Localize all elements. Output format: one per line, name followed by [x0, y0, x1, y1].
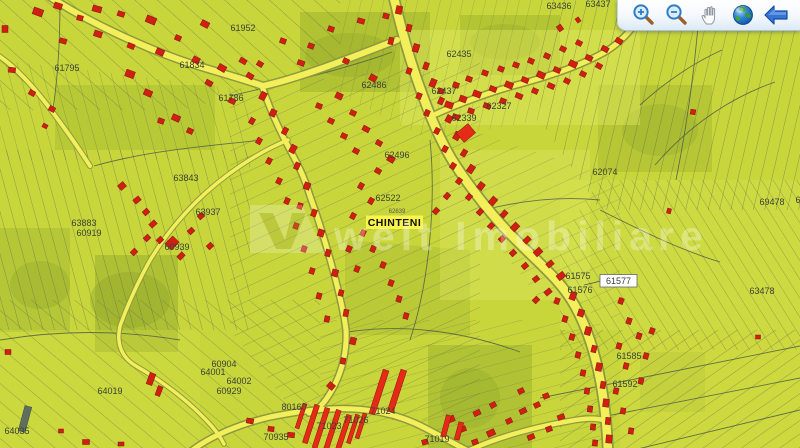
- svg-text:61786: 61786: [218, 93, 243, 103]
- svg-text:64019: 64019: [97, 386, 122, 396]
- svg-text:64002: 64002: [226, 376, 251, 386]
- svg-text:62074: 62074: [592, 167, 617, 177]
- svg-text:71024: 71024: [370, 406, 395, 416]
- svg-text:61575: 61575: [565, 271, 590, 281]
- svg-text:63843: 63843: [173, 173, 198, 183]
- boxed-parcel-label-text: 61577: [606, 276, 631, 286]
- svg-text:62437: 62437: [431, 86, 456, 96]
- svg-text:63437: 63437: [585, 0, 610, 9]
- svg-text:62327: 62327: [486, 101, 511, 111]
- svg-text:60939: 60939: [164, 242, 189, 252]
- svg-text:61795: 61795: [54, 63, 79, 73]
- zoom-in-button[interactable]: [630, 1, 658, 29]
- svg-text:63436: 63436: [546, 1, 571, 11]
- svg-text:64035: 64035: [4, 426, 29, 436]
- svg-text:69478: 69478: [759, 197, 784, 207]
- svg-text:70935: 70935: [263, 432, 288, 442]
- zoom-out-button[interactable]: [663, 1, 691, 29]
- watermark-text: welt Imobiliare: [333, 213, 709, 259]
- hand-icon: [698, 3, 722, 27]
- svg-text:63478: 63478: [749, 286, 774, 296]
- svg-text:80160: 80160: [281, 402, 306, 412]
- overview-button[interactable]: [729, 1, 757, 29]
- svg-text:71023: 71023: [316, 421, 341, 431]
- svg-text:71019: 71019: [424, 434, 449, 444]
- svg-text:62496: 62496: [384, 150, 409, 160]
- svg-text:62435: 62435: [446, 49, 471, 59]
- svg-text:63937: 63937: [195, 207, 220, 217]
- svg-text:71026: 71026: [343, 415, 368, 425]
- arrow-left-icon: [763, 3, 789, 27]
- zoom-in-icon: [632, 3, 656, 27]
- svg-text:60929: 60929: [216, 386, 241, 396]
- svg-text:61576: 61576: [567, 285, 592, 295]
- svg-text:61592: 61592: [612, 379, 637, 389]
- svg-text:61952: 61952: [230, 23, 255, 33]
- svg-text:62339: 62339: [451, 113, 476, 123]
- svg-text:62522: 62522: [375, 193, 400, 203]
- svg-text:69478: 69478: [795, 195, 800, 205]
- map-toolbar: [617, 0, 800, 31]
- svg-text:61585: 61585: [616, 351, 641, 361]
- zoom-out-icon: [665, 3, 689, 27]
- svg-text:61834: 61834: [179, 60, 204, 70]
- globe-icon: [731, 3, 755, 27]
- map-canvas[interactable]: 6195263436634376179561834617866248662435…: [0, 0, 800, 448]
- back-button[interactable]: [762, 1, 790, 29]
- svg-text:63883: 63883: [71, 218, 96, 228]
- svg-text:62486: 62486: [361, 80, 386, 90]
- svg-text:60919: 60919: [76, 228, 101, 238]
- pan-button[interactable]: [696, 1, 724, 29]
- svg-text:64001: 64001: [200, 367, 225, 377]
- map-viewport: 6195263436634376179561834617866248662435…: [0, 0, 800, 448]
